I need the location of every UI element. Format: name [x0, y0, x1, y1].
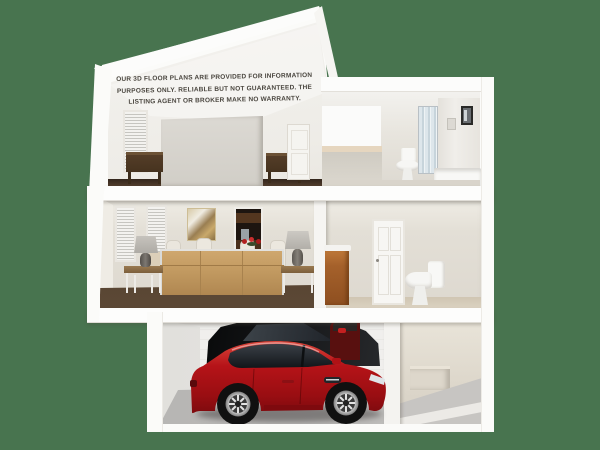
garage-base-slab [147, 424, 494, 432]
bathroom-window [461, 106, 473, 125]
bed-headboard [161, 116, 263, 186]
door-panel [291, 153, 308, 175]
bedroom-door [287, 124, 310, 180]
table-lamp-left-base [140, 253, 151, 267]
sink-top [324, 245, 351, 251]
bathroom-roof-band [321, 77, 494, 92]
door-panel [378, 227, 389, 251]
car-mirror [332, 358, 341, 364]
living-window-1 [115, 206, 136, 262]
sofa [160, 249, 284, 295]
sofa-seam [200, 251, 201, 295]
flower-greens [247, 242, 257, 246]
disclaimer-text: OUR 3D FLOOR PLANS ARE PROVIDED FOR INFO… [112, 70, 318, 109]
flower-centerpiece [242, 237, 264, 247]
shower-glass-panel [418, 106, 438, 174]
door-panel [390, 227, 401, 251]
end-table-left-legs [124, 273, 163, 293]
wall-painting [187, 208, 216, 241]
right-exterior-wall [481, 77, 494, 432]
end-table-right-legs [281, 273, 315, 293]
maroon-car-taillight [338, 328, 346, 333]
end-table-right-top [281, 266, 315, 273]
sink-cabinet [325, 249, 349, 305]
car-door-handle [282, 380, 294, 383]
door-panel [291, 130, 308, 150]
sofa-seam [242, 251, 243, 295]
door-panel [378, 255, 389, 295]
table-lamp-right-base [292, 249, 303, 266]
door-knob [376, 259, 379, 262]
rear-wheel [217, 383, 259, 425]
kitchen-upper-cabinet [236, 213, 261, 223]
powder-door [374, 221, 403, 303]
red-sedan-car [186, 338, 390, 428]
bathroom-vanity-counter [322, 106, 381, 146]
window-slit [464, 110, 467, 121]
car-taillight [190, 380, 197, 387]
car-vent-chrome [326, 379, 339, 381]
floor-plan-render: OUR 3D FLOOR PLANS ARE PROVIDED FOR INFO… [0, 0, 600, 450]
sofa-cushion-line [160, 265, 284, 266]
attic-floor-slab [87, 186, 494, 201]
front-wheel [325, 382, 367, 424]
vanity-shadow [322, 152, 382, 182]
car-glass [228, 344, 336, 368]
left-exterior-wall-garage [147, 312, 163, 432]
nightstand-left-legs [126, 172, 163, 184]
hallway-step-block [410, 366, 450, 390]
table-lamp-right-shade [285, 231, 311, 249]
nightstand-left [126, 152, 163, 172]
table-lamp-left-shade [134, 236, 158, 253]
end-table-left-top [124, 266, 163, 273]
shower-niche [447, 118, 456, 130]
door-panel [390, 255, 401, 295]
car-rocker [264, 405, 322, 410]
